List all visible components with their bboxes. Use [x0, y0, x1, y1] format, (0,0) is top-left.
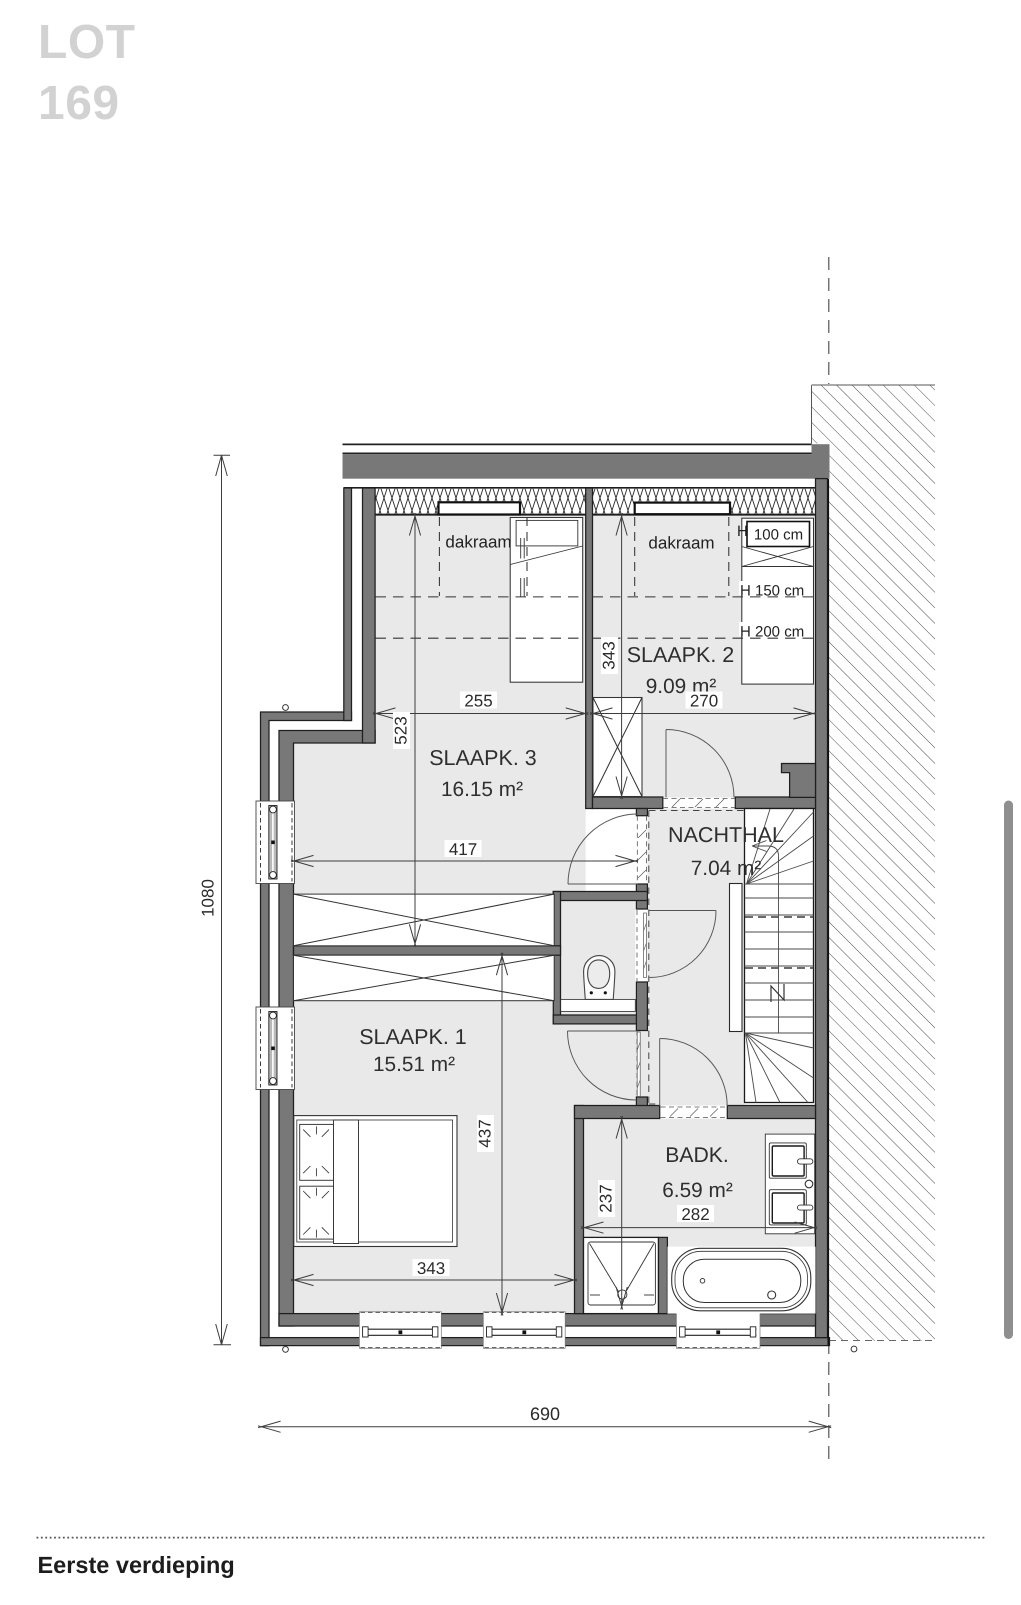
- svg-text:7.04 m²: 7.04 m²: [691, 857, 762, 880]
- svg-text:237: 237: [597, 1184, 616, 1212]
- svg-text:523: 523: [392, 716, 411, 744]
- svg-text:100 cm: 100 cm: [754, 527, 803, 544]
- svg-text:343: 343: [417, 1259, 445, 1278]
- svg-text:255: 255: [464, 692, 492, 711]
- svg-text:6.59 m²: 6.59 m²: [662, 1179, 733, 1202]
- svg-text:dakraam: dakraam: [445, 533, 511, 552]
- svg-text:SLAAPK. 1: SLAAPK. 1: [359, 1025, 467, 1049]
- svg-text:15.51 m²: 15.51 m²: [373, 1053, 455, 1076]
- svg-text:270: 270: [690, 692, 718, 711]
- svg-text:H: H: [737, 523, 748, 540]
- svg-text:417: 417: [449, 840, 477, 859]
- svg-text:LOT: LOT: [38, 16, 135, 69]
- svg-text:437: 437: [476, 1119, 495, 1147]
- svg-text:SLAAPK. 2: SLAAPK. 2: [627, 643, 735, 667]
- svg-text:dakraam: dakraam: [648, 534, 714, 553]
- svg-text:H 150 cm: H 150 cm: [740, 582, 804, 599]
- svg-text:343: 343: [600, 641, 619, 669]
- svg-text:H 200 cm: H 200 cm: [740, 624, 804, 641]
- svg-text:169: 169: [38, 77, 120, 130]
- svg-text:Eerste verdieping: Eerste verdieping: [38, 1552, 235, 1578]
- svg-text:SLAAPK. 3: SLAAPK. 3: [429, 746, 537, 770]
- svg-text:BADK.: BADK.: [665, 1144, 729, 1167]
- svg-text:16.15 m²: 16.15 m²: [441, 778, 523, 801]
- svg-text:690: 690: [530, 1404, 560, 1424]
- svg-text:282: 282: [681, 1205, 709, 1224]
- svg-text:1080: 1080: [199, 879, 218, 917]
- svg-text:NACHTHAL: NACHTHAL: [668, 823, 784, 847]
